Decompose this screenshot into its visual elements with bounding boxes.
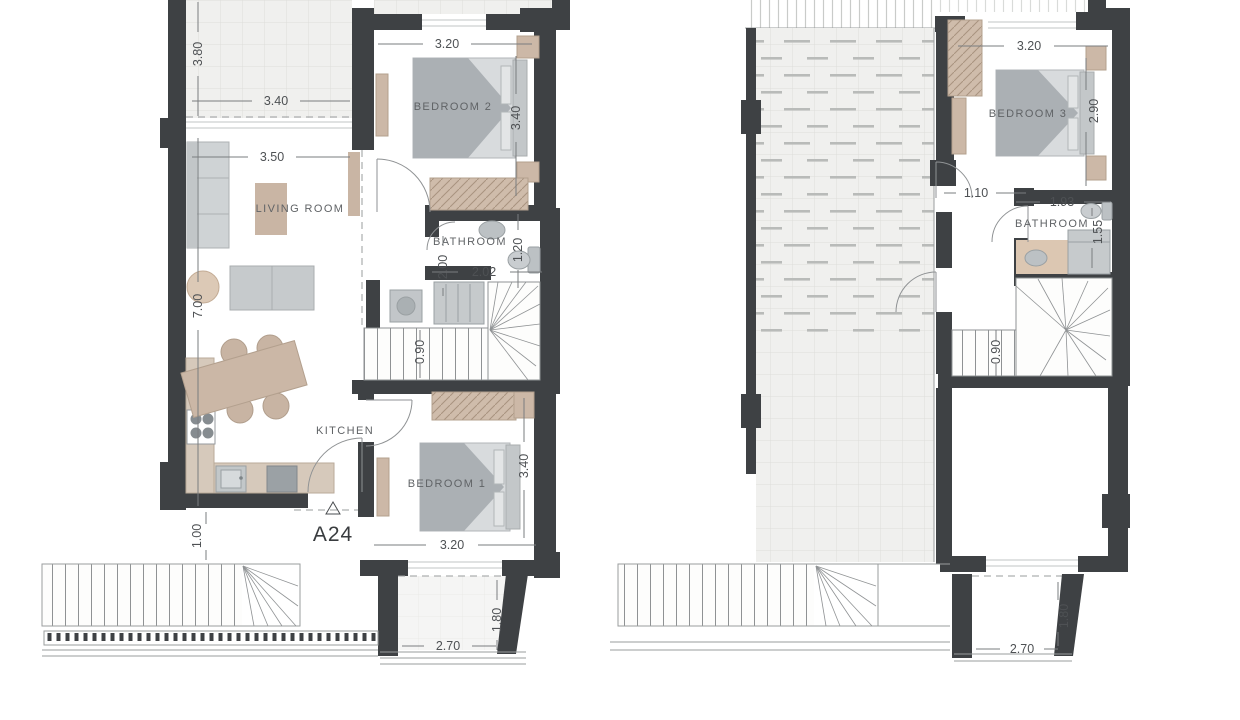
dim-bedroom2-width: 3.20 [435,37,459,51]
ff-terrace [756,28,934,562]
nightstand [1086,46,1106,70]
dim-balcony-depth-ff: 1.80 [1057,604,1071,628]
nightstand [1086,156,1106,180]
dim-balcony-depth-gf: 1.80 [490,608,504,632]
dim-hall: 2.00 [436,255,450,279]
wardrobe-bedroom3 [948,20,982,96]
dim-balcony-width-ff: 2.70 [1010,642,1034,656]
room-label-bedroom3: BEDROOM 3 [989,108,1068,120]
dim-bathroom-width-gf: 2.02 [472,265,496,279]
nightstand [517,36,539,58]
unit-entry-marker: A24 [313,502,353,546]
unit-label: A24 [313,523,353,546]
dim-entry-offset: 1.00 [190,524,204,548]
dim-bathroom-depth-ff: 1.55 [1091,220,1105,244]
dim-bedroom3-depth: 2.90 [1087,99,1101,123]
sofa [187,142,229,248]
ground-floor-plan: A24 LIVING ROOM KITCHEN BEDROOM 2 BATHRO… [42,0,570,664]
exterior-stairs-first [610,564,950,650]
dim-terrace-depth: 3.80 [191,42,205,66]
room-label-bathroom-ff: BATHROOM [1015,218,1089,230]
dim-stair-width-gf: 0.90 [413,340,427,364]
first-floor-plan: BEDROOM 3 BATHROOM 3.20 2.90 1.10 1.93 1… [610,0,1130,661]
stairs-first-floor [952,278,1112,376]
wardrobe-bedroom2 [430,178,528,210]
dim-stair-width-ff: 0.90 [989,340,1003,364]
dim-bedroom2-depth: 3.40 [509,106,523,130]
floorplan-canvas: A24 LIVING ROOM KITCHEN BEDROOM 2 BATHRO… [0,0,1240,720]
shower-gf [434,282,484,324]
dim-balcony-width-gf: 2.70 [436,639,460,653]
dining-table [181,335,307,423]
dim-living-depth: 7.00 [191,294,205,318]
room-label-bedroom2: BEDROOM 2 [414,101,493,113]
shelf [952,98,966,154]
room-label-living: LIVING ROOM [256,203,345,215]
dim-landing: 1.10 [964,186,988,200]
dim-bathroom-width-ff: 1.93 [1050,195,1074,209]
washer [390,290,422,322]
exterior-stairs-ground [42,564,378,656]
room-label-bathroom-gf: BATHROOM [433,236,507,248]
dim-bedroom3-width: 3.20 [1017,39,1041,53]
dim-bathroom-depth-gf: 1.20 [511,238,525,262]
room-label-bedroom1: BEDROOM 1 [408,478,487,490]
dim-bedroom1-width: 3.20 [440,538,464,552]
kitchen-sink [216,466,246,492]
railing [44,631,378,645]
wardrobe-bedroom1 [432,392,516,420]
coffee-table [230,266,314,310]
dim-living-width: 3.50 [260,150,284,164]
oven [267,466,297,492]
dim-terrace-width: 3.40 [264,94,288,108]
room-label-kitchen: KITCHEN [316,425,374,437]
dim-bedroom1-depth: 3.40 [517,454,531,478]
ff-roof-edge [745,0,935,28]
tv-unit [348,152,360,216]
floor-plan-svg: A24 LIVING ROOM KITCHEN BEDROOM 2 BATHRO… [0,0,1240,720]
shelf [377,458,389,516]
ff-roof-edge2 [935,0,1098,12]
shelf [376,74,388,136]
